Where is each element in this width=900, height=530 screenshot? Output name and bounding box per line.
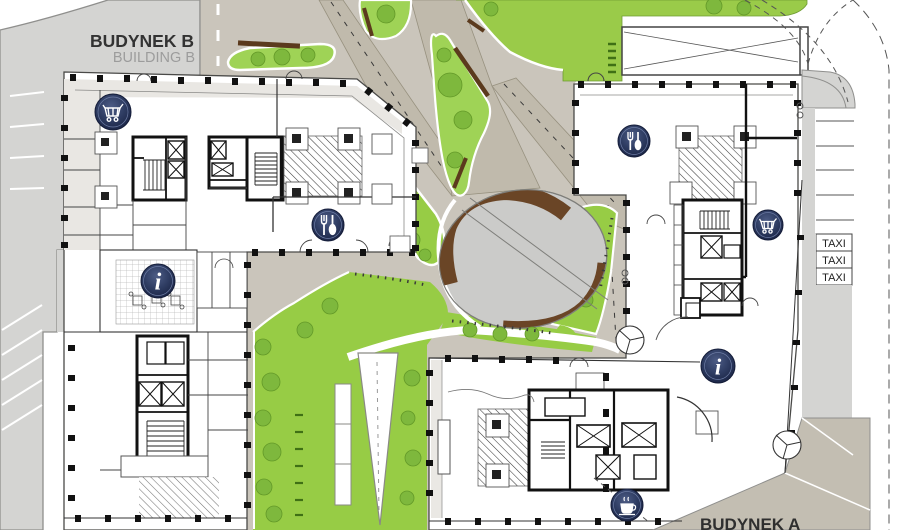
svg-text:TAXI: TAXI bbox=[822, 238, 846, 250]
svg-text:TAXI: TAXI bbox=[822, 272, 846, 284]
svg-text:i: i bbox=[155, 270, 162, 296]
svg-text:BUDYNEK A: BUDYNEK A bbox=[700, 515, 800, 530]
svg-text:i: i bbox=[715, 355, 722, 380]
svg-text:TAXI: TAXI bbox=[822, 255, 846, 267]
svg-text:BUILDING B: BUILDING B bbox=[113, 50, 195, 66]
svg-text:BUDYNEK B: BUDYNEK B bbox=[90, 31, 194, 51]
